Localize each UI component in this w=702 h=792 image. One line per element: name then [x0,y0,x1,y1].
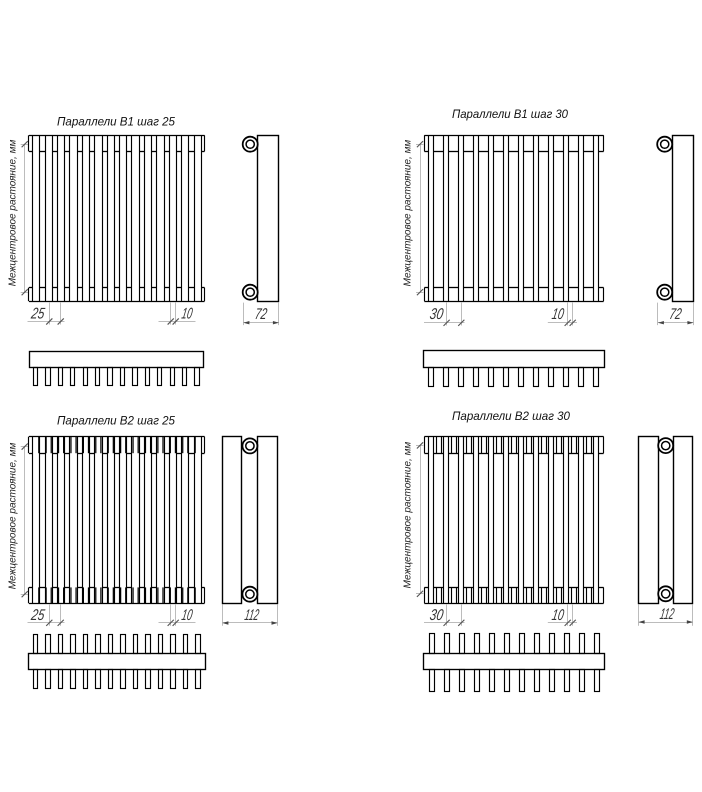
svg-text:25: 25 [29,306,46,323]
svg-text:Межцентровое растояние, мм: Межцентровое растояние, мм [403,442,414,589]
svg-text:Межцентровое растояние, мм: Межцентровое растояние, мм [8,140,19,287]
svg-text:Межцентровое растояние, мм: Межцентровое растояние, мм [403,140,414,287]
svg-text:72: 72 [254,306,269,323]
svg-text:30: 30 [428,306,444,323]
svg-text:112: 112 [243,607,260,624]
svg-text:72: 72 [668,306,683,323]
svg-text:10: 10 [180,306,194,323]
svg-text:25: 25 [29,607,46,624]
svg-text:Параллели В1 шаг 25: Параллели В1 шаг 25 [57,114,175,128]
svg-text:Межцентровое растояние, мм: Межцентровое растояние, мм [8,443,19,590]
svg-text:112: 112 [659,606,676,623]
svg-text:10: 10 [551,607,566,624]
svg-text:Параллели В1 шаг 30: Параллели В1 шаг 30 [452,107,568,121]
svg-text:30: 30 [428,607,444,624]
svg-text:Параллели В2 шаг 25: Параллели В2 шаг 25 [57,413,175,427]
svg-text:10: 10 [551,306,566,323]
svg-text:10: 10 [180,607,194,624]
svg-text:Параллели В2 шаг 30: Параллели В2 шаг 30 [452,409,570,423]
